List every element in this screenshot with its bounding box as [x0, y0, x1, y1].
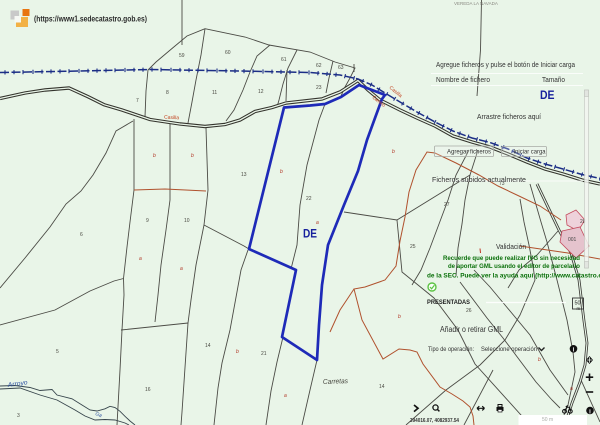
svg-text:de aportar GML usando el edito: de aportar GML usando el editor de parce…	[448, 263, 580, 270]
svg-text:23: 23	[316, 85, 322, 91]
svg-text:VEREDA LA NAVADA: VEREDA LA NAVADA	[454, 1, 498, 6]
svg-text:b: b	[153, 153, 156, 159]
svg-text:60: 60	[225, 50, 231, 56]
svg-text:Seleccione operación: Seleccione operación	[481, 346, 537, 353]
svg-text:14: 14	[205, 343, 211, 349]
svg-text:25: 25	[410, 244, 416, 250]
svg-text:b: b	[392, 149, 395, 155]
svg-text:b: b	[191, 153, 194, 159]
svg-text:a: a	[284, 393, 287, 399]
svg-text:16: 16	[145, 387, 151, 393]
svg-text:21: 21	[261, 351, 267, 357]
svg-text:Iniciar carga: Iniciar carga	[514, 149, 546, 156]
svg-text:Arrastre ficheros aquí: Arrastre ficheros aquí	[477, 112, 542, 121]
svg-text:Añadir o retirar GML: Añadir o retirar GML	[440, 325, 503, 334]
svg-text:a: a	[180, 266, 183, 272]
svg-text:DE: DE	[540, 88, 555, 102]
svg-text:001: 001	[568, 237, 577, 243]
svg-text:a: a	[316, 220, 319, 226]
svg-text:11: 11	[212, 90, 217, 96]
svg-text:Agregue ficheros y pulse el bo: Agregue ficheros y pulse el botón de Ini…	[436, 62, 575, 69]
svg-text:PRESENTADAS: PRESENTADAS	[427, 299, 471, 306]
svg-text:63: 63	[338, 65, 344, 71]
svg-text:b: b	[236, 349, 239, 355]
svg-text:5: 5	[56, 349, 59, 355]
svg-text:Validación: Validación	[496, 242, 526, 251]
svg-text:8: 8	[166, 90, 169, 96]
svg-text:10: 10	[184, 218, 190, 224]
svg-text:22: 22	[306, 196, 312, 202]
svg-text:Ficheros subidos actualmente: Ficheros subidos actualmente	[432, 175, 526, 184]
svg-text:Nombre de fichero: Nombre de fichero	[436, 77, 490, 84]
svg-text:a: a	[139, 256, 142, 262]
svg-text:b: b	[538, 357, 541, 363]
svg-text:62: 62	[316, 63, 322, 69]
svg-text:3: 3	[17, 413, 20, 419]
svg-text:DE: DE	[303, 227, 317, 241]
svg-text:(https://www1.sedecatastro.gob: (https://www1.sedecatastro.gob.es)	[34, 15, 147, 24]
svg-text:Carretas: Carretas	[323, 378, 349, 386]
svg-text:27: 27	[444, 202, 450, 208]
svg-text:Recuerde que puede realizar IV: Recuerde que puede realizar IVG sin nece…	[443, 255, 580, 262]
svg-text:b: b	[280, 169, 283, 175]
svg-text:26: 26	[466, 308, 472, 314]
svg-text:de la SEC. Puede ver la ayuda: de la SEC. Puede ver la ayuda aquí (http…	[427, 273, 600, 280]
svg-text:a: a	[570, 386, 573, 392]
svg-text:m: m	[577, 306, 581, 311]
svg-text:Tipo de operación:: Tipo de operación:	[428, 346, 474, 353]
svg-text:61: 61	[281, 57, 287, 63]
svg-text:Casilla: Casilla	[164, 115, 180, 122]
svg-text:12: 12	[258, 89, 264, 95]
svg-text:Agregar ficheros: Agregar ficheros	[447, 149, 492, 156]
svg-text:394016.07, 4082937.54: 394016.07, 4082937.54	[410, 418, 459, 424]
svg-text:14: 14	[379, 384, 385, 390]
svg-text:13: 13	[241, 172, 247, 178]
svg-text:7: 7	[136, 98, 139, 104]
svg-text:9: 9	[146, 218, 149, 224]
svg-text:59: 59	[179, 53, 185, 59]
svg-text:Tamaño: Tamaño	[542, 77, 565, 84]
svg-text:6: 6	[80, 232, 83, 238]
svg-text:50 m: 50 m	[542, 417, 553, 423]
svg-text:b: b	[398, 314, 401, 320]
